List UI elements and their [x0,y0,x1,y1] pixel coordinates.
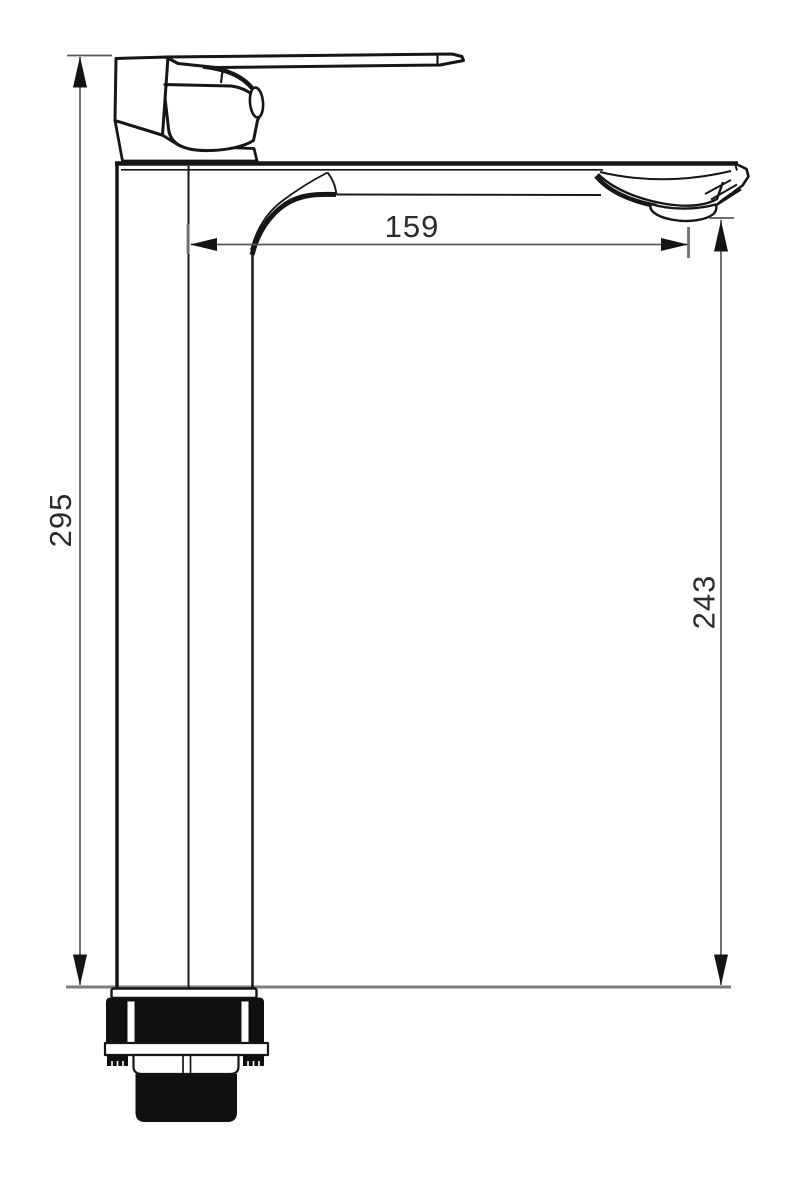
spout-fillet-thick-curve [252,194,336,255]
spout-fillet-connector [328,173,337,195]
arrowhead-up [714,221,728,252]
dimension-overall-height: 295 [43,56,112,986]
arrowhead-up [73,57,87,88]
arrowhead-down [714,955,728,986]
spout-fillet-thin-curve [251,173,328,251]
technical-drawing-canvas: 295 159 243 [0,0,803,1200]
arrowhead-left [190,238,217,251]
tip-fan-line-3 [705,180,731,194]
base-plate [112,989,257,999]
handle-internal-hline [164,85,232,87]
dimension-spout-reach: 159 [188,209,689,258]
flange-slot-right [242,1002,249,1043]
washer-bar [105,1043,268,1055]
lever-blade [166,54,464,68]
spout-aerator [596,164,749,221]
dim-label-295: 295 [43,493,78,548]
faucet-body-column [117,162,253,989]
handle-back-block [115,57,168,135]
aerator-upper-arc [600,171,731,179]
handle-knuckle [164,85,261,151]
faucet-dimension-drawing: 295 159 243 [0,0,803,1200]
flange-slot-left [128,1002,135,1043]
mounting-hardware [105,989,268,1123]
dim-label-159: 159 [385,209,440,244]
arrowhead-right [661,238,688,251]
faucet-handle [115,54,464,161]
spout-bottom-edge [337,195,602,196]
arrowhead-down [73,955,87,986]
dimension-outlet-height: 243 [687,218,735,986]
dim-label-243: 243 [687,575,722,630]
threaded-shank [134,1055,239,1074]
mounting-nut [136,1074,238,1122]
